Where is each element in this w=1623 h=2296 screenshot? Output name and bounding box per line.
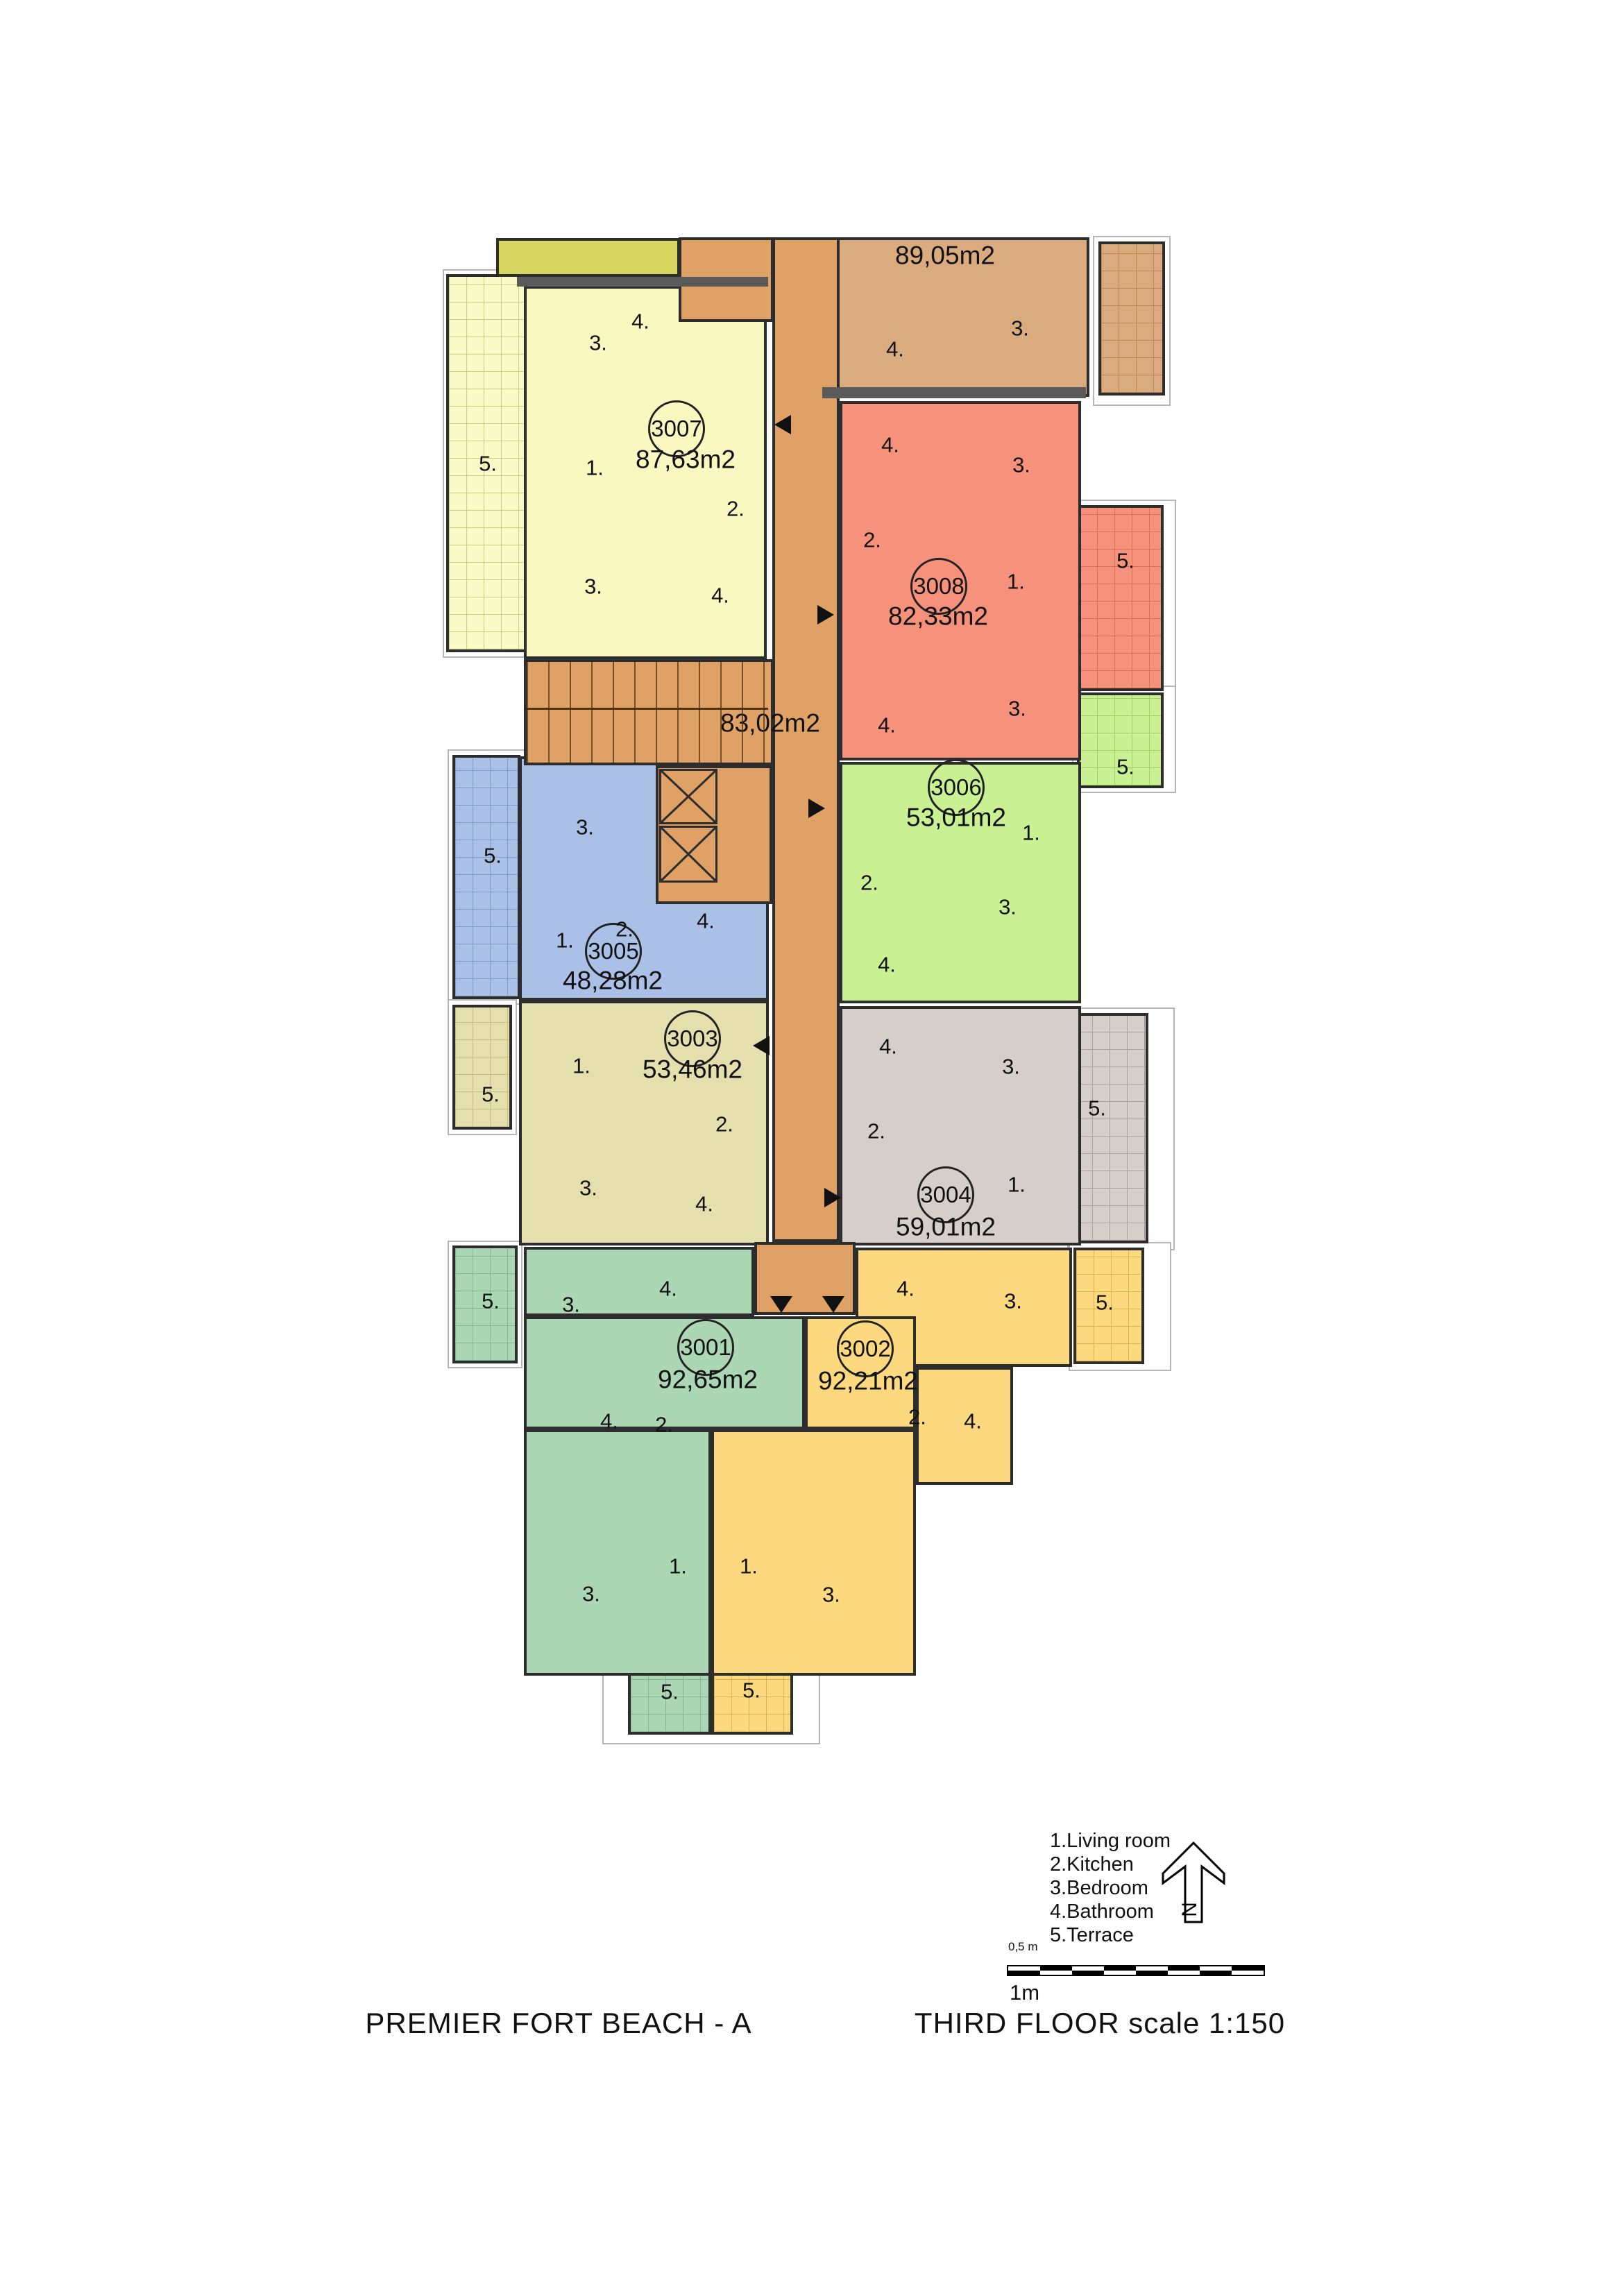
room-label: 3.	[1008, 698, 1026, 720]
room-label: 3.	[1004, 1291, 1022, 1312]
room-label: 1.	[740, 1556, 758, 1577]
room-label: 3.	[584, 576, 602, 597]
room-label: 1.	[572, 1055, 590, 1077]
terrace-3005	[452, 755, 520, 999]
legend-item: 4.Bathroom	[1050, 1900, 1171, 1923]
legend: 1.Living room2.Kitchen3.Bedroom4.Bathroo…	[1050, 1829, 1171, 1947]
room-label: 3.	[562, 1294, 580, 1316]
room-label: 5.	[1096, 1292, 1114, 1313]
apartment-3002-block	[711, 1429, 916, 1676]
floor-title: THIRD FLOOR scale 1:150	[915, 2007, 1285, 2040]
room-label: 5.	[479, 453, 497, 475]
north-arrow-icon: N	[1160, 1840, 1227, 1928]
apartment-area-label: 53,01m2	[906, 805, 1006, 831]
scale-bar	[1007, 1965, 1265, 1976]
apartment-3001-block	[524, 1247, 754, 1316]
room-label: 5.	[742, 1680, 760, 1701]
elevator-icon	[659, 826, 717, 883]
scalebar-top-label: 0,5 m	[1008, 1940, 1038, 1954]
stairs-icon	[527, 662, 768, 763]
room-label: 5.	[1116, 550, 1135, 572]
door-arrow-icon	[822, 1296, 844, 1313]
apartment-area-label: 53,46m2	[643, 1057, 742, 1082]
room-label: 3.	[822, 1584, 840, 1606]
room-label: 5.	[661, 1681, 679, 1703]
room-label: 1.	[1007, 571, 1025, 593]
legend-item: 3.Bedroom	[1050, 1876, 1171, 1900]
party-wall	[517, 277, 768, 287]
door-arrow-icon	[753, 1036, 770, 1055]
room-label: 1.	[556, 930, 574, 951]
room-label: 3.	[999, 896, 1017, 918]
svg-text:N: N	[1178, 1902, 1201, 1917]
room-label: 4.	[897, 1278, 915, 1300]
apartment-area-label: 82,33m2	[888, 604, 988, 629]
room-label: 5.	[482, 1084, 500, 1105]
room-label: 2.	[908, 1406, 926, 1428]
room-label: 3.	[576, 817, 594, 838]
room-label: 4.	[659, 1278, 677, 1300]
elevator-icon	[659, 769, 717, 824]
apartment-area-label: 87,63m2	[636, 447, 736, 473]
apartment-area-label: 92,65m2	[658, 1367, 758, 1393]
room-label: 1.	[1008, 1174, 1026, 1196]
room-label: 1.	[669, 1556, 687, 1577]
room-label: 1.	[1022, 822, 1040, 844]
apartment-area-label: 59,01m2	[896, 1214, 996, 1240]
door-arrow-icon	[770, 1296, 792, 1313]
room-label: 5.	[482, 1291, 500, 1312]
room-label: 4.	[878, 715, 896, 736]
terrace-3004	[1072, 1013, 1148, 1243]
legend-item: 5.Terrace	[1050, 1923, 1171, 1947]
project-title: PREMIER FORT BEACH - A	[365, 2007, 751, 2040]
stairs-landing-line	[527, 708, 768, 710]
room-label: 3.	[589, 332, 607, 354]
room-label: 1.	[586, 457, 604, 479]
room-label: 4.	[964, 1411, 982, 1432]
door-arrow-icon	[774, 415, 791, 434]
door-arrow-icon	[817, 605, 834, 624]
room-label: 2.	[863, 529, 881, 551]
room-label: 2.	[860, 872, 878, 894]
apartment-area-label: 89,05m2	[895, 243, 995, 269]
room-label: 4.	[886, 339, 904, 360]
room-label: 4.	[711, 585, 729, 606]
room-label: 4.	[600, 1411, 618, 1432]
room-label: 3.	[582, 1583, 600, 1605]
room-label: 4.	[695, 1193, 713, 1215]
room-label: 5.	[484, 845, 502, 867]
party-wall	[822, 387, 1086, 398]
terrace-3003	[452, 1005, 512, 1130]
room-label: 4.	[881, 434, 899, 456]
room-label: 5.	[1116, 756, 1135, 778]
room-label: 4.	[697, 910, 715, 932]
room-label: 3.	[1012, 454, 1030, 476]
door-arrow-icon	[824, 1188, 841, 1207]
terrace-8905	[1098, 241, 1165, 396]
legend-item: 2.Kitchen	[1050, 1853, 1171, 1876]
terrace-3008	[1077, 505, 1164, 691]
room-label: 2.	[655, 1414, 673, 1436]
scalebar-bottom-label: 1m	[1010, 1980, 1039, 2005]
room-label: 4.	[631, 311, 649, 332]
room-label: 3.	[1002, 1056, 1020, 1078]
room-label: 3.	[1011, 318, 1029, 339]
room-label: 3.	[579, 1177, 597, 1199]
apartment-3001-block	[524, 1429, 711, 1676]
room-label: 2.	[715, 1114, 733, 1135]
room-label: 4.	[879, 1036, 897, 1057]
room-label: 4.	[878, 954, 896, 976]
room-label: 2.	[867, 1121, 885, 1142]
floor-plan-page: 300787,63m289,05m2300882,33m2300548,28m2…	[0, 0, 1623, 2296]
room-label: 5.	[1088, 1098, 1106, 1119]
upper-unit-strip	[496, 238, 680, 277]
room-label: 2.	[615, 919, 634, 940]
apartment-area-label: 48,28m2	[563, 968, 663, 994]
apartment-area-label: 92,21m2	[818, 1368, 918, 1394]
room-label: 2.	[726, 498, 745, 520]
door-arrow-icon	[808, 799, 825, 818]
legend-item: 1.Living room	[1050, 1829, 1171, 1853]
